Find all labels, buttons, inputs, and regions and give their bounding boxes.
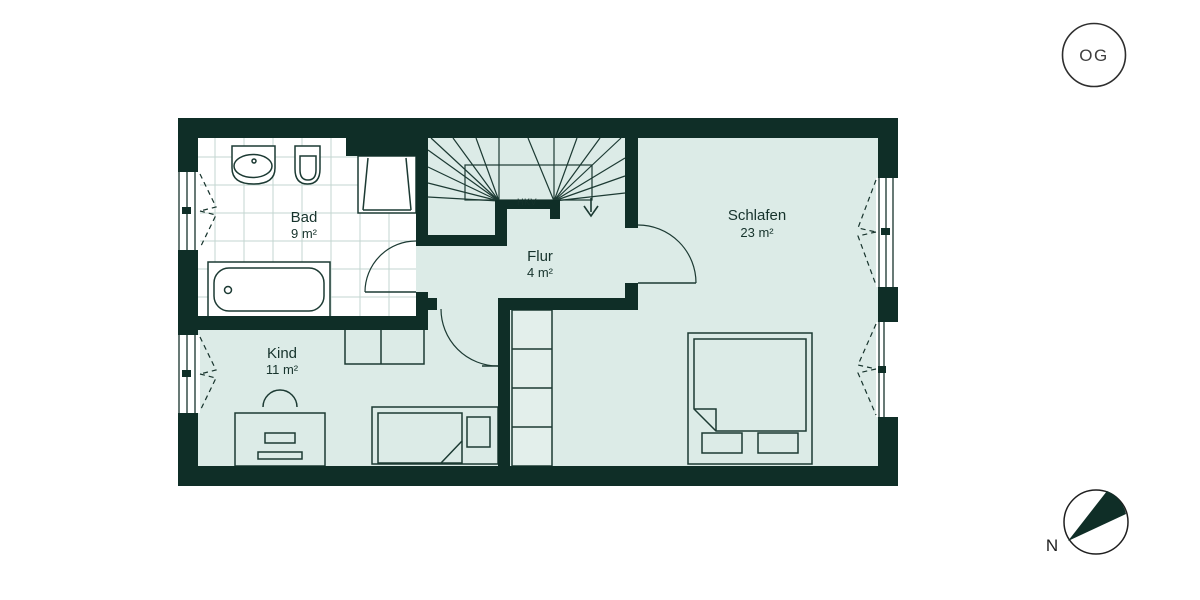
compass-north-label: N (1046, 536, 1058, 555)
desk-keyboard-icon (258, 452, 302, 459)
sink-drain-icon (252, 159, 256, 163)
wall-stair-leg-right (550, 200, 560, 219)
room-label-bad: Bad (291, 209, 318, 226)
bathtub-icon (208, 262, 330, 317)
double-bed-icon (688, 333, 812, 464)
sink-basin-icon (234, 155, 272, 178)
wall-shower-niche (346, 138, 428, 156)
room-label-schlafen: Schlafen (728, 207, 786, 224)
floor-badge: OG (1063, 24, 1126, 87)
floor-badge-label: OG (1079, 46, 1108, 65)
room-area-schlafen: 23 m² (740, 225, 774, 240)
room-label-kind: Kind (267, 345, 297, 362)
single-bed-icon (372, 407, 498, 464)
dresser-icon (345, 328, 424, 364)
floorplan-page: Bad 9 m² Flur 4 m² Kind 11 m² Schlafen 2… (0, 0, 1200, 600)
floorplan-drawing: Bad 9 m² Flur 4 m² Kind 11 m² Schlafen 2… (0, 0, 1200, 600)
wall-kind-east (498, 298, 510, 466)
desk-monitor-icon (265, 433, 295, 443)
wall-stair-south (425, 235, 507, 246)
room-area-flur: 4 m² (527, 265, 554, 280)
wall-bad-east-upper (416, 138, 428, 246)
wall-schlafen-west-upper (625, 138, 638, 228)
north-compass: N (1046, 490, 1128, 555)
wardrobe-icon (512, 310, 552, 466)
wall-bottom (178, 466, 898, 486)
shower-icon (358, 156, 416, 213)
room-area-bad: 9 m² (291, 226, 318, 241)
room-area-kind: 11 m² (266, 362, 299, 377)
room-label-flur: Flur (527, 248, 553, 265)
wall-kind-door-jamb (428, 298, 437, 310)
wall-top (178, 118, 898, 138)
wall-right (878, 118, 898, 486)
wall-schlafen-west-stub (625, 283, 638, 298)
toilet-bowl-icon (300, 156, 316, 180)
wall-flur-south (498, 298, 638, 310)
hkv-label: HKV (517, 197, 537, 207)
wall-bad-south (178, 316, 428, 330)
